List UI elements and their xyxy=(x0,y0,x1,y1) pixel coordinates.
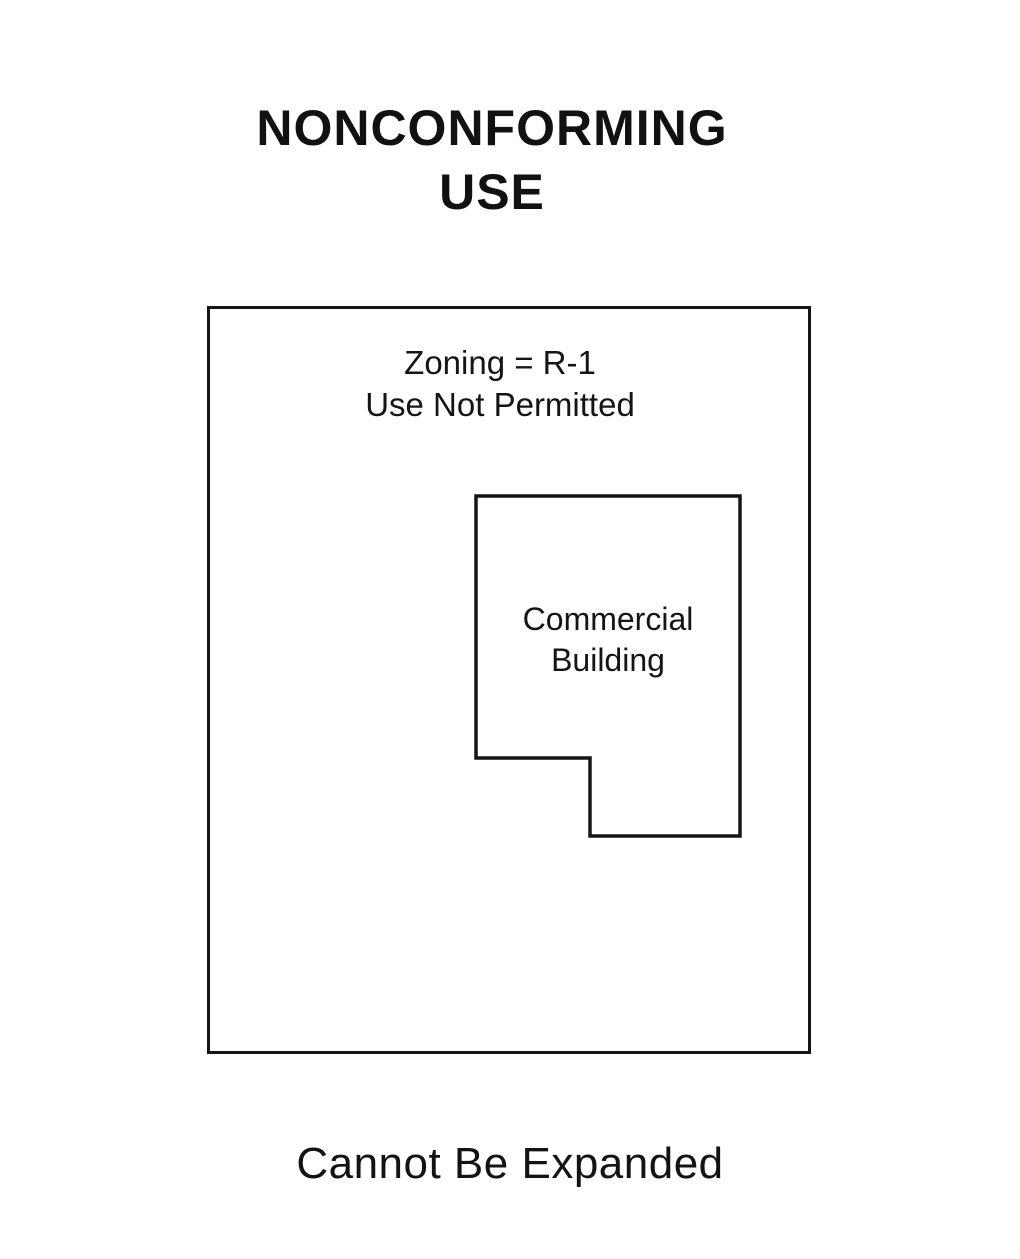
lot-parcel-rectangle: Zoning = R-1 Use Not Permitted Commercia… xyxy=(207,306,811,1054)
caption-text: Cannot Be Expanded xyxy=(0,1139,1020,1189)
title-line2: USE xyxy=(0,160,984,224)
building-label-line2: Building xyxy=(476,640,740,681)
diagram-title: NONCONFORMING USE xyxy=(0,96,984,224)
building-label-line1: Commercial xyxy=(476,599,740,640)
diagram-page: NONCONFORMING USE Zoning = R-1 Use Not P… xyxy=(0,0,1020,1259)
commercial-building-outline xyxy=(210,309,814,1057)
title-line1: NONCONFORMING xyxy=(0,96,984,160)
building-label: Commercial Building xyxy=(476,599,740,681)
